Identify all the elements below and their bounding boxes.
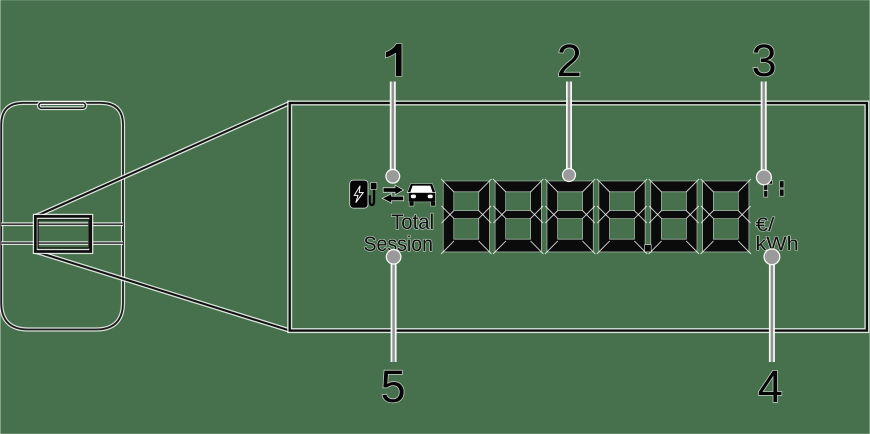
svg-text:4: 4: [758, 361, 783, 412]
svg-text:3: 3: [752, 35, 777, 86]
svg-text:5: 5: [381, 361, 406, 412]
svg-text:Total: Total: [391, 211, 434, 234]
svg-text:2: 2: [557, 35, 582, 86]
